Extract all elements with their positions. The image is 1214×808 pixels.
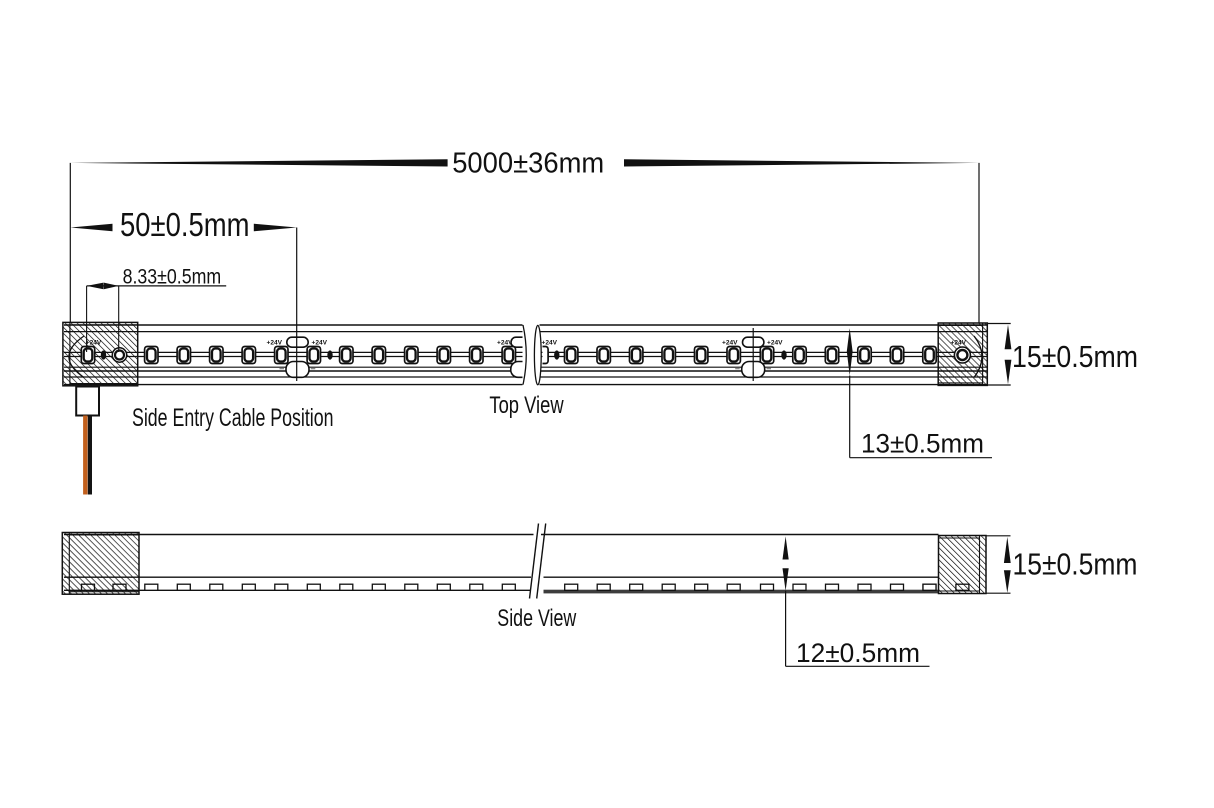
svg-text:Side Entry Cable Position: Side Entry Cable Position (132, 404, 334, 432)
svg-text:15±0.5mm: 15±0.5mm (1012, 339, 1138, 374)
svg-text:+24V: +24V (497, 340, 513, 347)
svg-text:+24V: +24V (767, 340, 783, 347)
svg-text:+24V: +24V (267, 340, 283, 347)
svg-text:+24V: +24V (542, 340, 558, 347)
svg-text:13±0.5mm: 13±0.5mm (861, 429, 984, 459)
svg-text:Top View: Top View (489, 392, 564, 419)
svg-text:12±0.5mm: 12±0.5mm (796, 638, 920, 668)
svg-text:15±0.5mm: 15±0.5mm (1013, 547, 1138, 582)
svg-text:50±0.5mm: 50±0.5mm (120, 206, 250, 243)
svg-text:+24V: +24V (312, 340, 328, 347)
svg-text:+24V: +24V (722, 340, 738, 347)
svg-text:+24V: +24V (86, 340, 102, 347)
svg-text:5000±36mm: 5000±36mm (452, 148, 604, 180)
svg-text:Side View: Side View (497, 605, 576, 632)
svg-text:+24V: +24V (951, 340, 967, 347)
svg-text:8.33±0.5mm: 8.33±0.5mm (123, 265, 222, 288)
